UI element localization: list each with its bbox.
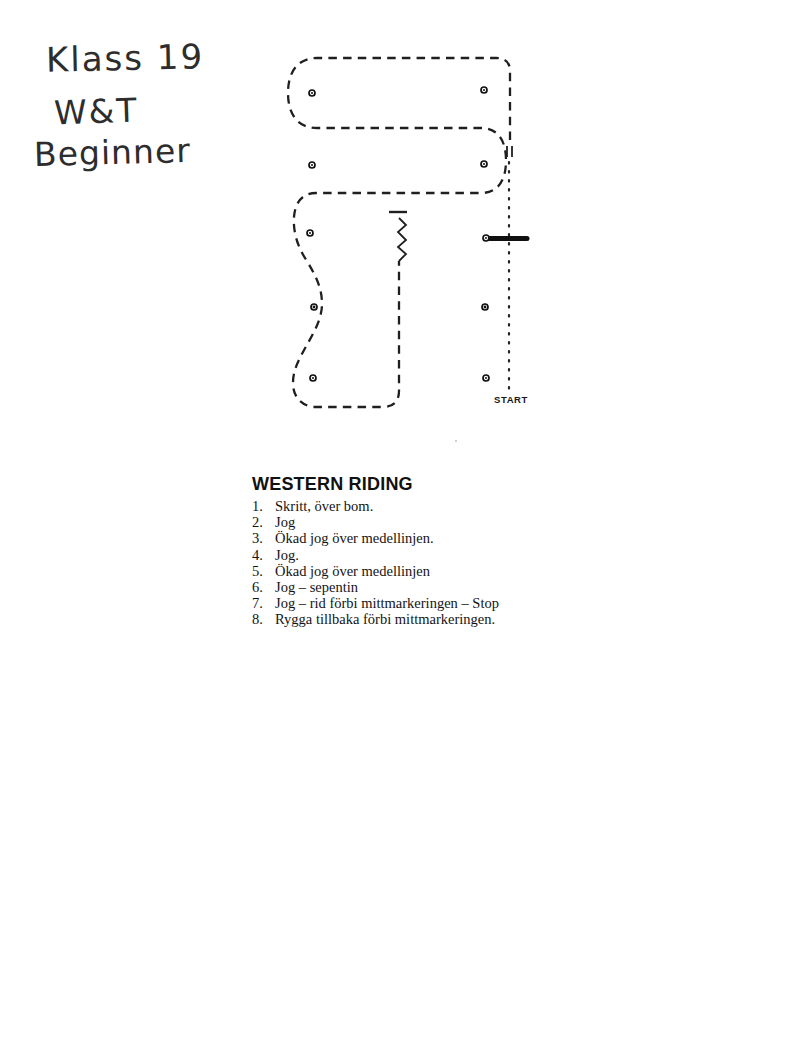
instructions-list: 1. Skritt, över bom. 2. Jog 3. Ökad jog … [252,498,552,628]
item-number: 3. [252,530,275,546]
item-number: 4. [252,547,275,563]
item-number: 6. [252,579,275,595]
item-text: Jog [275,514,295,530]
scanned-document-page: Klass 19 W&T Beginner [0,0,800,1047]
item-text: Jog – rid förbi mittmarkeringen – Stop [275,595,499,611]
handwritten-class-number: Klass 19 [46,36,205,79]
item-text: Jog – sepentin [275,579,358,595]
instruction-item: 7. Jog – rid förbi mittmarkeringen – Sto… [252,595,552,611]
instruction-item: 6. Jog – sepentin [252,579,552,595]
item-number: 2. [252,514,275,530]
riding-pattern-diagram: START [275,45,545,455]
scan-speckle [455,440,457,442]
start-label: START [494,394,528,405]
item-text: Ökad jog över medellinjen. [275,530,434,546]
backup-zigzag [398,218,406,261]
instruction-item: 1. Skritt, över bom. [252,498,552,514]
handwritten-division: W&T [53,91,139,133]
pattern-instructions: WESTERN RIDING 1. Skritt, över bom. 2. J… [252,474,552,628]
item-text: Ökad jog över medellinjen [275,563,430,579]
transition-tick-marks [507,146,512,157]
item-number: 1. [252,498,275,514]
item-number: 5. [252,563,275,579]
item-text: Jog. [275,547,299,563]
instruction-item: 3. Ökad jog över medellinjen. [252,530,552,546]
item-text: Rygga tillbaka förbi mittmarkeringen. [275,611,495,627]
instruction-item: 4. Jog. [252,547,552,563]
instruction-item: 5. Ökad jog över medellinjen [252,563,552,579]
instructions-title: WESTERN RIDING [252,474,552,494]
item-number: 7. [252,595,275,611]
item-number: 8. [252,611,275,627]
item-text: Skritt, över bom. [275,498,373,514]
instruction-item: 2. Jog [252,514,552,530]
handwritten-level: Beginner [34,131,192,174]
instruction-item: 8. Rygga tillbaka förbi mittmarkeringen. [252,611,552,627]
